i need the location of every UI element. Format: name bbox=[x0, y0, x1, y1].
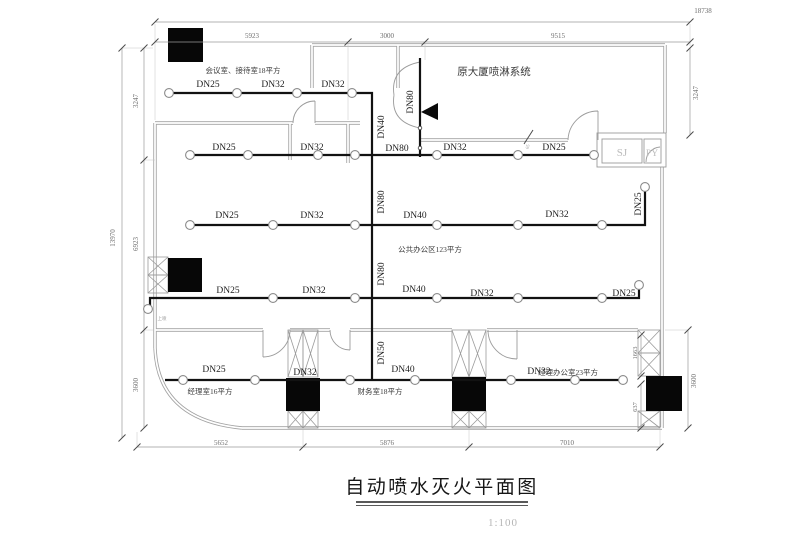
sprinkler-head bbox=[411, 376, 420, 385]
pipe-size-label: DN50 bbox=[377, 341, 387, 364]
pipe-size-label: DN25 bbox=[612, 289, 635, 299]
sprinkler-head bbox=[433, 294, 442, 303]
tiny-note-2: 65 bbox=[525, 143, 531, 149]
dim-left-3: 3600 bbox=[132, 378, 140, 393]
pipe-size-label: DN32 bbox=[300, 211, 323, 221]
shaft-label-sj: SJ bbox=[617, 147, 628, 159]
sprinkler-head bbox=[590, 151, 599, 160]
dim-top-2: 3000 bbox=[380, 32, 395, 40]
plan-title: 自动喷水灭火平面图 bbox=[345, 476, 539, 498]
sprinkler-head bbox=[641, 183, 650, 192]
dim-left-total: 13970 bbox=[109, 229, 117, 247]
sprinkler-head bbox=[269, 221, 278, 230]
pipe-size-label: DN32 bbox=[302, 286, 325, 296]
pipe-size-label: DN80 bbox=[406, 90, 416, 113]
sprinkler-head bbox=[348, 89, 357, 98]
pipe-size-label: DN25 bbox=[215, 211, 238, 221]
dim-top-1: 5923 bbox=[245, 32, 260, 40]
sprinkler-head bbox=[144, 305, 153, 314]
shaft-hatch-cell bbox=[148, 257, 168, 275]
sprinkler-head bbox=[433, 221, 442, 230]
dim-right-top: 3247 bbox=[692, 86, 700, 101]
sprinkler-head bbox=[598, 221, 607, 230]
pipe-size-label: DN32 bbox=[443, 143, 466, 153]
dim-right-637: 637 bbox=[632, 401, 639, 412]
dim-top-3: 9515 bbox=[551, 32, 566, 40]
pipe-size-label: DN40 bbox=[391, 365, 414, 375]
shaft-hatch-cell bbox=[148, 275, 168, 293]
pipe-size-label: DN32 bbox=[261, 80, 284, 90]
hatched-shafts bbox=[148, 257, 660, 428]
pipe-size-label: DN32 bbox=[300, 143, 323, 153]
sprinkler-head bbox=[179, 376, 188, 385]
pipe-size-label: DN25 bbox=[542, 143, 565, 153]
sprinkler-head bbox=[351, 221, 360, 230]
dim-left-2: 6923 bbox=[132, 237, 140, 252]
sprinkler-head bbox=[619, 376, 628, 385]
sprinkler-head bbox=[351, 294, 360, 303]
sprinkler-head bbox=[514, 151, 523, 160]
plan-scale: 1:100 bbox=[488, 517, 518, 529]
column bbox=[168, 258, 202, 292]
dim-left-1: 3247 bbox=[132, 94, 140, 109]
dim-right-1663: 1663 bbox=[632, 347, 639, 360]
pipe-joint bbox=[418, 126, 422, 130]
pipe-size-label: DN80 bbox=[377, 262, 387, 285]
pipe-size-label: DN25 bbox=[202, 365, 225, 375]
dim-bottom-3: 7010 bbox=[560, 439, 575, 447]
sprinkler-head bbox=[433, 151, 442, 160]
sprinkler-head bbox=[293, 89, 302, 98]
source-system-label: 原大厦喷淋系统 bbox=[457, 65, 531, 78]
shaft-hatch-cell bbox=[452, 411, 469, 428]
sprinkler-head bbox=[244, 151, 253, 160]
drawing-canvas: 1873859233000951513970324769233600324716… bbox=[0, 0, 800, 533]
sprinkler-head bbox=[269, 294, 278, 303]
pipe-size-label: DN25 bbox=[634, 192, 644, 215]
pipe-joint bbox=[418, 146, 422, 150]
pipe-size-label: DN80 bbox=[385, 144, 408, 154]
shaft-hatch-cell bbox=[469, 330, 486, 377]
column bbox=[168, 28, 203, 62]
pipe-size-label: DN32 bbox=[293, 368, 316, 378]
dim-bottom-2: 5876 bbox=[380, 439, 395, 447]
tiny-note-1: 上喷 bbox=[158, 315, 167, 322]
pipe-size-label: DN80 bbox=[377, 190, 387, 213]
room-label-manager: 经理室16平方 bbox=[188, 386, 233, 396]
shaft-hatch-cell bbox=[288, 411, 303, 428]
pipe-size-label: DN40 bbox=[377, 115, 387, 138]
sprinkler-head bbox=[351, 151, 360, 160]
flow-arrow bbox=[421, 103, 438, 120]
floor-plan-svg: 1873859233000951513970324769233600324716… bbox=[0, 0, 800, 533]
dim-right-3600: 3600 bbox=[690, 374, 698, 389]
pipe-size-label: DN40 bbox=[403, 211, 426, 221]
sprinkler-head bbox=[233, 89, 242, 98]
pipe-size-label: DN32 bbox=[321, 80, 344, 90]
dim-bottom-1: 5652 bbox=[214, 439, 229, 447]
shaft-hatch-cell bbox=[303, 411, 318, 428]
shaft-hatch-cell bbox=[452, 330, 469, 377]
sprinkler-heads bbox=[144, 89, 650, 385]
pipe-size-label: DN25 bbox=[196, 80, 219, 90]
pipe-size-label: DN25 bbox=[212, 143, 235, 153]
sprinkler-head bbox=[598, 294, 607, 303]
shaft-label-py: PY bbox=[646, 149, 658, 159]
room-label-finance: 财务室18平方 bbox=[358, 386, 403, 396]
sprinkler-head bbox=[635, 281, 644, 290]
column bbox=[646, 376, 682, 411]
sprinkler-head bbox=[165, 89, 174, 98]
column bbox=[452, 377, 486, 411]
room-label-office: 经理办公室23平方 bbox=[538, 367, 598, 377]
column bbox=[286, 378, 320, 411]
pipe-size-label: DN25 bbox=[216, 286, 239, 296]
room-label-meeting: 会议室、接待室18平方 bbox=[206, 65, 281, 75]
sprinkler-head bbox=[514, 294, 523, 303]
room-label-public: 公共办公区123平方 bbox=[398, 244, 462, 254]
sprinkler-head bbox=[186, 151, 195, 160]
pipe-size-label: DN40 bbox=[402, 285, 425, 295]
sprinkler-head bbox=[251, 376, 260, 385]
dim-top-total: 18738 bbox=[694, 7, 712, 15]
sprinkler-head bbox=[186, 221, 195, 230]
pipe-size-label: DN32 bbox=[545, 210, 568, 220]
sprinkler-head bbox=[507, 376, 516, 385]
sprinkler-head bbox=[346, 376, 355, 385]
shaft-hatch-cell bbox=[469, 411, 486, 428]
title-block: 自动喷水灭火平面图 1:100 bbox=[345, 476, 539, 529]
sprinkler-head bbox=[514, 221, 523, 230]
pipe-size-label: DN32 bbox=[470, 289, 493, 299]
wall-break-tick bbox=[524, 130, 533, 144]
